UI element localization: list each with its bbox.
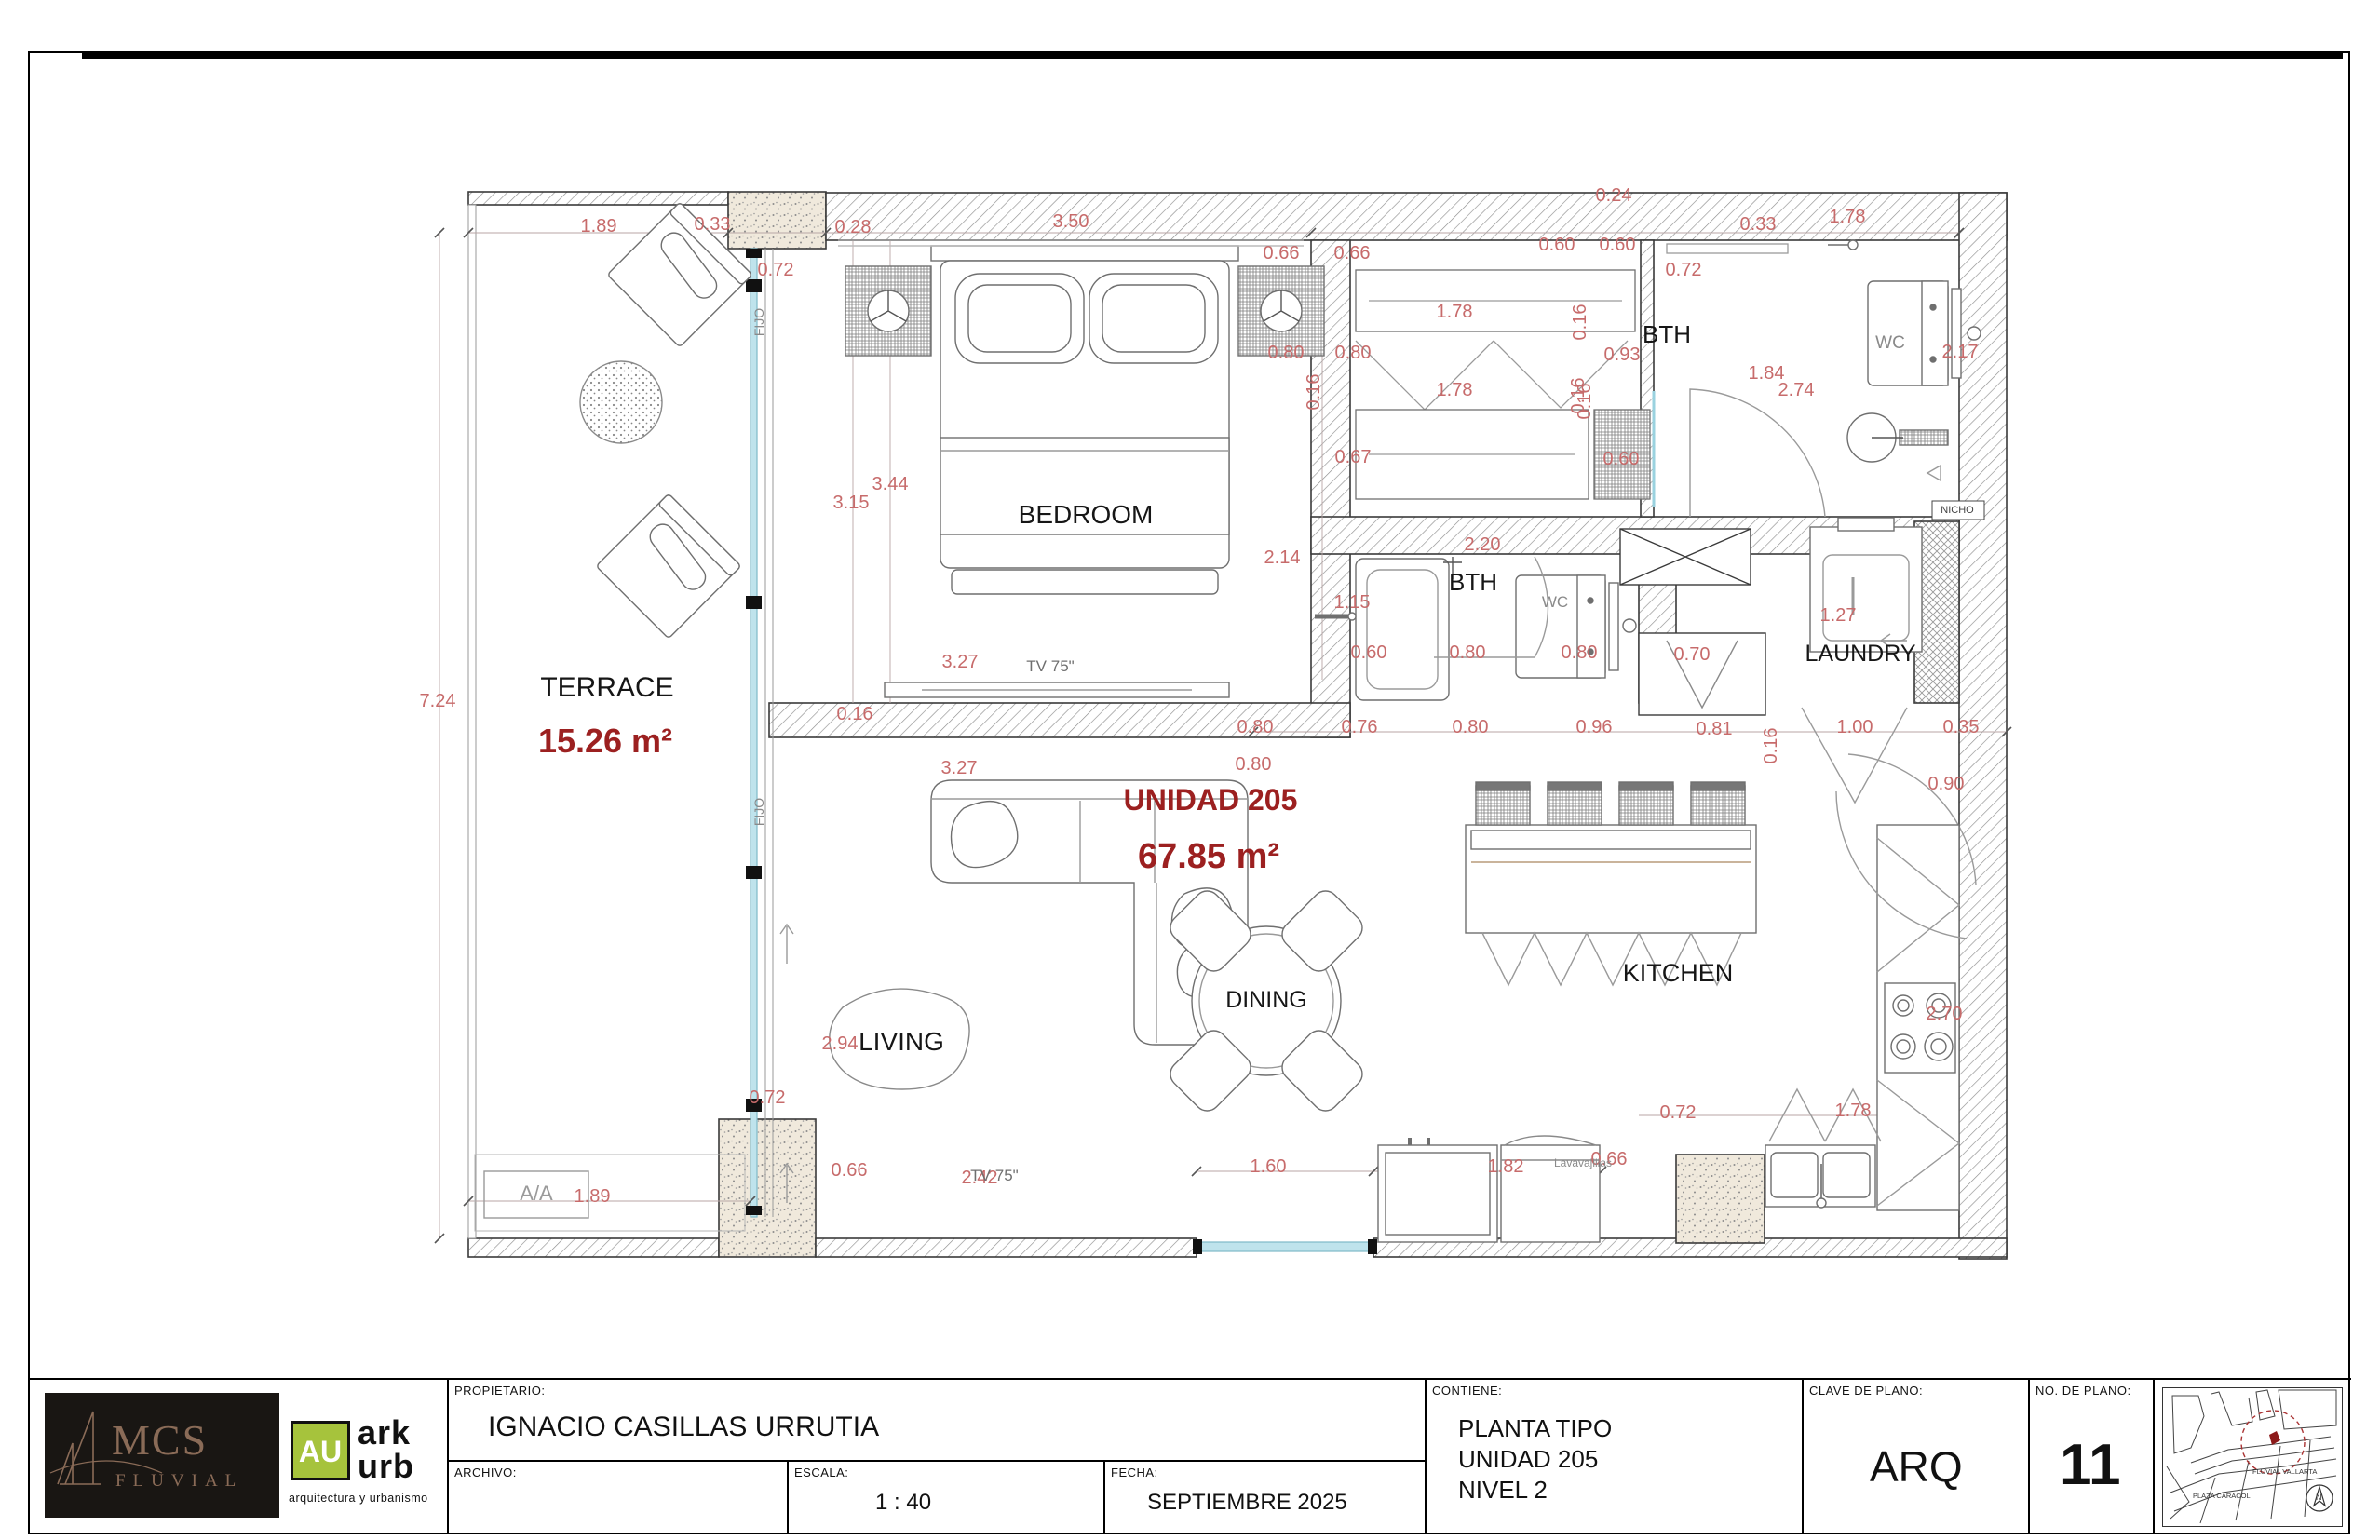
kitchen-furniture bbox=[1378, 782, 1967, 1242]
stove bbox=[1885, 983, 1955, 1073]
arkurb-logo-icon: AU bbox=[291, 1421, 350, 1480]
map-label-fluvial: FLUVIAL VALLARTA bbox=[2252, 1467, 2317, 1476]
mcs-logo-subtext: FLUVIAL bbox=[115, 1471, 243, 1492]
dimension-label: 0.90 bbox=[1928, 774, 1965, 794]
dimension-label: 0.72 bbox=[1660, 1102, 1697, 1123]
dishwasher bbox=[1501, 1136, 1600, 1242]
dimension-label: 3.27 bbox=[941, 758, 978, 778]
dimension-label: 0.80 bbox=[1335, 343, 1372, 363]
clave-label: CLAVE DE PLANO: bbox=[1809, 1384, 1923, 1398]
contiene-label: CONTIENE: bbox=[1432, 1384, 1502, 1398]
room-label: TERRACE bbox=[540, 672, 673, 703]
dimension-label: 0.93 bbox=[1604, 344, 1641, 365]
terrace-furniture bbox=[475, 202, 752, 1231]
north-arrow-icon: N bbox=[2306, 1485, 2333, 1511]
dimension-label: 0.80 bbox=[1237, 717, 1274, 737]
dimension-label: 0.80 bbox=[1453, 717, 1489, 737]
numero-label: NO. DE PLANO: bbox=[2035, 1384, 2131, 1398]
dimension-label: 0.81 bbox=[1697, 719, 1733, 739]
dimension-label: 0.70 bbox=[1674, 644, 1711, 665]
dimension-label: 1.78 bbox=[1437, 380, 1473, 400]
dimension-label: 0.80 bbox=[1562, 642, 1598, 663]
area-label: 15.26 m² bbox=[538, 722, 672, 760]
dimension-label: 0.16 bbox=[1570, 304, 1590, 341]
clave-value: ARQ bbox=[1870, 1441, 1963, 1492]
dimension-label: 0.28 bbox=[835, 217, 872, 237]
annotation-label: NICHO bbox=[1941, 505, 1974, 516]
dimension-label: 0.33 bbox=[695, 214, 731, 235]
room-label: LIVING bbox=[859, 1027, 944, 1056]
door-swing bbox=[1690, 389, 1825, 517]
pillow bbox=[955, 274, 1084, 363]
dimension-label: 0.16 bbox=[837, 704, 873, 724]
dimension-label: 1.15 bbox=[1334, 592, 1371, 613]
area-label: UNIDAD 205 bbox=[1124, 783, 1298, 817]
propietario-value: IGNACIO CASILLAS URRUTIA bbox=[488, 1412, 879, 1443]
dimension-label: 0.60 bbox=[1600, 235, 1636, 255]
dimension-label: 1.82 bbox=[1488, 1156, 1524, 1177]
sliding-door bbox=[1193, 1239, 1377, 1254]
dimension-label: 1.00 bbox=[1837, 717, 1873, 737]
fecha-label: FECHA: bbox=[1111, 1466, 1158, 1479]
dimension-label: 0.72 bbox=[758, 260, 794, 280]
dimension-label: 0.80 bbox=[1450, 642, 1486, 663]
dimension-label: 1.89 bbox=[581, 216, 617, 236]
escala-label: ESCALA: bbox=[794, 1466, 848, 1479]
room-label: BTH bbox=[1449, 568, 1497, 596]
dimension-label: 1.78 bbox=[1835, 1101, 1872, 1121]
dimension-label: 0.16 bbox=[1761, 728, 1781, 764]
dimension-label: 2.14 bbox=[1264, 547, 1301, 568]
dimension-label: 0.33 bbox=[1740, 214, 1777, 235]
contiene-line-3: NIVEL 2 bbox=[1458, 1475, 1548, 1506]
room-label: LAUNDRY bbox=[1805, 641, 1915, 667]
dimension-label: 0.60 bbox=[1603, 449, 1640, 469]
pillow bbox=[1089, 274, 1218, 363]
floor-plan: 1.890.330.280.723.500.660.660.240.600.60… bbox=[0, 0, 2380, 1540]
map-label-plaza: PLAZA CARACOL bbox=[2193, 1492, 2251, 1500]
bar-stool bbox=[1476, 782, 1745, 825]
round-rug bbox=[580, 361, 662, 443]
dimension-label: 0.24 bbox=[1596, 185, 1632, 206]
contiene-line-2: UNIDAD 205 bbox=[1458, 1444, 1598, 1475]
drawing-sheet: 1.890.330.280.723.500.660.660.240.600.60… bbox=[0, 0, 2380, 1540]
svg-text:N: N bbox=[2316, 1493, 2322, 1502]
bathroom-1 bbox=[1654, 240, 1984, 520]
dimension-label: 3.15 bbox=[833, 493, 870, 513]
annotation-label: FIJO bbox=[751, 798, 766, 826]
dimension-label: 0.60 bbox=[1539, 235, 1575, 255]
lounge-chair bbox=[596, 493, 741, 639]
dimension-label: 0.66 bbox=[1334, 243, 1371, 263]
dimension-label: 1.27 bbox=[1820, 605, 1857, 626]
annotation-label: WC bbox=[1542, 593, 1568, 611]
dimension-label: 2.17 bbox=[1942, 342, 1979, 362]
dimension-label: 0.80 bbox=[1268, 343, 1305, 363]
fecha-value: SEPTIEMBRE 2025 bbox=[1147, 1490, 1347, 1516]
dimension-label: 2.74 bbox=[1778, 380, 1815, 400]
dimension-label: 0.76 bbox=[1342, 717, 1378, 737]
area-labels: 15.26 m²UNIDAD 20567.85 m² bbox=[538, 722, 1297, 876]
nightstand bbox=[845, 266, 931, 356]
dimension-label: 1.60 bbox=[1251, 1156, 1287, 1177]
shower-head-icon bbox=[1828, 240, 1858, 250]
escala-value: 1 : 40 bbox=[875, 1490, 931, 1516]
bedroom-furniture bbox=[838, 240, 1324, 697]
dimension-label: 0.66 bbox=[832, 1160, 868, 1181]
dimension-label: 0.66 bbox=[1264, 243, 1300, 263]
annotation-label: TV 75" bbox=[1026, 657, 1074, 675]
dimension-label: 2.20 bbox=[1465, 534, 1501, 555]
dimension-label: 0.35 bbox=[1943, 717, 1980, 737]
area-label: 67.85 m² bbox=[1138, 837, 1279, 876]
annotation-label: FIJO bbox=[751, 308, 766, 336]
dimension-label: 0.67 bbox=[1335, 447, 1372, 467]
arkurb-logo-subtext: arquitectura y urbanismo bbox=[289, 1492, 428, 1505]
annotation-label: TV 75" bbox=[970, 1167, 1018, 1184]
accessory bbox=[1927, 466, 1941, 480]
annotation-label: Lavavajillas bbox=[1554, 1156, 1612, 1169]
fridge bbox=[1378, 1138, 1497, 1242]
dimension-label: 3.27 bbox=[942, 652, 979, 672]
dimension-label: 1.78 bbox=[1437, 302, 1473, 322]
dimension-label: 0.80 bbox=[1236, 754, 1272, 775]
dimension-label: 1.78 bbox=[1830, 207, 1866, 227]
room-label: DINING bbox=[1225, 987, 1307, 1013]
arkurb-logo-urb: urb bbox=[358, 1447, 414, 1486]
dimension-label: 0.96 bbox=[1576, 717, 1613, 737]
dimension-label: 1.89 bbox=[575, 1186, 611, 1207]
dimension-label: 0.72 bbox=[1666, 260, 1702, 280]
dimension-label: 0.16 bbox=[1568, 378, 1589, 414]
propietario-label: PROPIETARIO: bbox=[454, 1384, 546, 1398]
contiene-line-1: PLANTA TIPO bbox=[1458, 1413, 1612, 1444]
shower bbox=[1356, 559, 1449, 700]
room-label: BTH bbox=[1643, 320, 1691, 348]
mcs-logo-text: MCS bbox=[112, 1415, 208, 1465]
sink-double bbox=[1765, 1145, 1875, 1208]
dimension-label: 7.24 bbox=[420, 691, 456, 711]
dimension-label: 2.94 bbox=[822, 1033, 859, 1054]
dimension-label: 3.44 bbox=[872, 474, 909, 494]
annotation-label: WC bbox=[1875, 333, 1905, 353]
room-label: BEDROOM bbox=[1019, 500, 1154, 529]
dimension-label: 0.60 bbox=[1351, 642, 1387, 663]
room-label: KITCHEN bbox=[1623, 959, 1734, 987]
archivo-label: ARCHIVO: bbox=[454, 1466, 517, 1479]
dimension-label: 3.50 bbox=[1053, 211, 1089, 232]
wardrobes bbox=[1356, 244, 1788, 499]
dimension-label: 2.70 bbox=[1927, 1004, 1963, 1024]
numero-value: 11 bbox=[2060, 1432, 2121, 1498]
dimension-label: 0.72 bbox=[750, 1087, 786, 1108]
sink bbox=[1847, 413, 1948, 462]
annotation-label: A/A bbox=[520, 1182, 553, 1205]
dimension-label: 0.16 bbox=[1304, 374, 1324, 411]
location-map: PLAZA CARACOL FLUVIAL VALLARTA N bbox=[2162, 1387, 2343, 1527]
